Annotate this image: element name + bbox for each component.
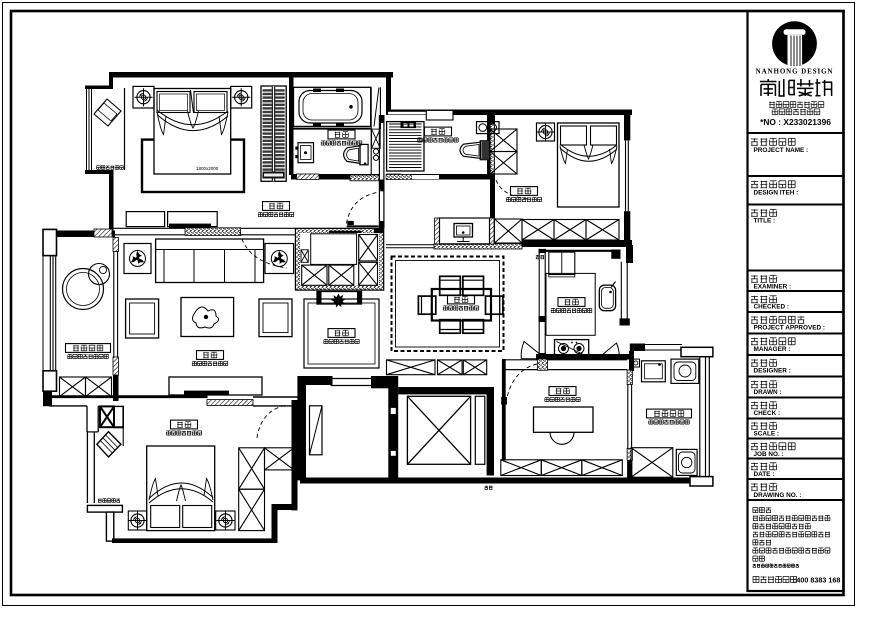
svg-text:DRAWN :: DRAWN : (754, 389, 782, 396)
svg-text:NANHONG DESIGN: NANHONG DESIGN (756, 68, 834, 76)
svg-text:EXAMINER :: EXAMINER : (754, 284, 792, 291)
svg-text:JOB NO. :: JOB NO. : (754, 451, 784, 458)
svg-text:*NO : X233021396: *NO : X233021396 (760, 117, 831, 127)
svg-text:PROJECT APPROVED :: PROJECT APPROVED : (754, 325, 826, 332)
svg-text:DRAWING NO. :: DRAWING NO. : (754, 492, 802, 499)
svg-text:PROJECT NAME :: PROJECT NAME : (754, 147, 809, 154)
svg-text:CHECKED :: CHECKED : (754, 304, 790, 311)
svg-text:SCALE :: SCALE : (754, 431, 780, 438)
svg-text:1800x2000: 1800x2000 (196, 166, 219, 171)
svg-text:CHECK :: CHECK : (754, 410, 781, 417)
svg-text:TITLE :: TITLE : (754, 218, 776, 225)
svg-text:DESIGN ITEH :: DESIGN ITEH : (754, 190, 799, 197)
svg-text:DESIGNER :: DESIGNER : (754, 368, 791, 375)
svg-text:MANAGER :: MANAGER : (754, 346, 791, 353)
svg-text::400 8383 168: :400 8383 168 (794, 576, 840, 585)
svg-text:DATE :: DATE : (754, 471, 775, 478)
